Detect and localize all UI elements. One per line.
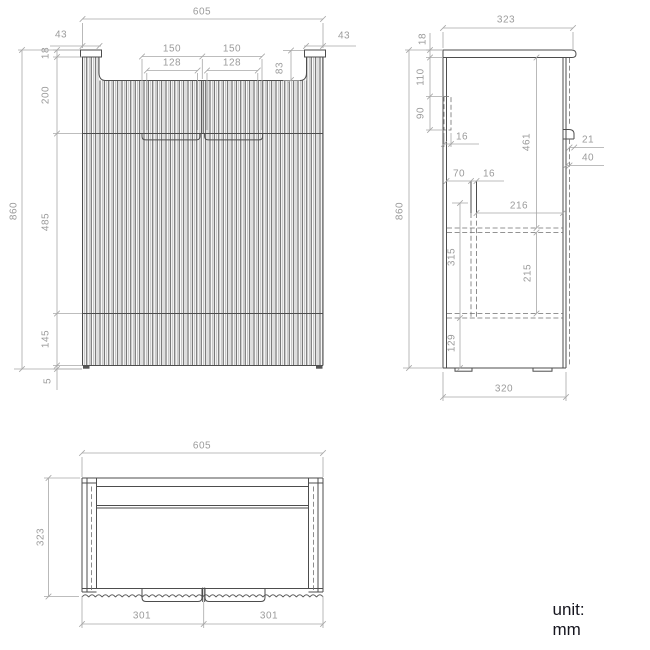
dim-side-drawer-inner-height: 215 [523,264,534,282]
top-view [44,450,326,628]
dim-side-rail-height: 90 [416,107,427,119]
dim-side-overall-depth: 323 [497,15,515,26]
dim-side-base-depth: 320 [495,384,513,395]
vanity-technical-drawing: 605 43 43 150 150 128 128 83 18 200 860 … [0,0,650,650]
dim-side-runner-offset: 70 [453,169,465,180]
dim-side-rail-top-offset: 110 [416,68,427,85]
dim-side-bottom-offset: 129 [447,334,458,352]
dim-top-door-width-right: 301 [260,611,278,622]
dim-front-side-margin-right: 43 [338,31,350,42]
front-view [14,16,356,390]
dim-front-handle-width-right: 150 [223,44,241,55]
side-view [403,25,604,401]
dim-side-rail-thickness: 16 [456,132,468,143]
dim-front-handle-inner-right: 128 [223,58,241,69]
dim-front-upper-section: 200 [41,86,52,104]
dim-front-handle-inner-left: 128 [163,58,181,69]
dim-side-top-thickness: 18 [418,33,429,45]
hidden-lines [444,58,570,367]
dim-front-plinth-height: 5 [43,378,54,384]
unit-label: unit: mm [553,600,618,640]
front-foot-left [83,366,90,369]
dim-side-drawer-zone-height: 315 [447,248,458,266]
dim-front-cap-thickness: 18 [41,47,52,59]
drawing-lines [0,0,650,650]
dim-top-overall-width: 605 [193,441,211,452]
dim-front-side-margin-left: 43 [55,30,67,41]
dim-side-handle-profile: 40 [582,153,594,164]
dim-top-door-width-left: 301 [133,611,151,622]
dim-side-handle-projection: 21 [582,135,594,146]
dim-front-overall-width: 605 [193,7,211,18]
dim-front-overall-height: 860 [9,202,20,220]
dim-side-interior-depth: 216 [510,201,528,212]
dim-side-interior-height: 461 [522,133,533,151]
dim-side-runner-thickness: 16 [483,169,495,180]
dim-side-overall-height: 860 [395,202,406,220]
front-foot-right [316,366,323,369]
dim-front-handle-width-left: 150 [163,44,181,55]
dim-front-door-section: 485 [41,213,52,231]
dim-top-overall-depth: 323 [36,528,47,546]
dim-front-lower-section: 145 [41,330,52,348]
dim-front-top-recess: 83 [275,62,286,74]
